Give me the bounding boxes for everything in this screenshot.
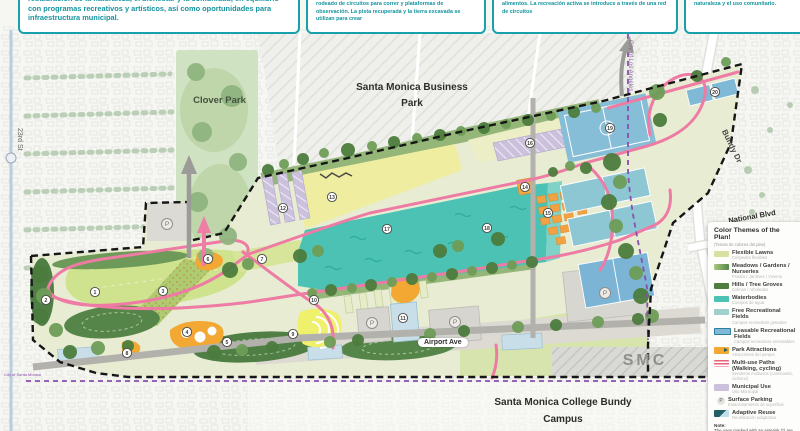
freefield-swatch-icon	[714, 309, 729, 316]
parking-swatch-icon: P	[717, 397, 725, 405]
map-marker-number: 14	[522, 185, 528, 191]
tree-icon	[433, 244, 447, 258]
tree-icon	[352, 334, 364, 346]
tree-icon	[603, 153, 621, 171]
legend-item: Flexible LawnsCéspedes flexibles	[714, 250, 798, 261]
tree-icon	[365, 279, 377, 291]
map-marker-number: 17	[384, 227, 390, 233]
tree-icon	[721, 57, 731, 67]
tree-icon	[548, 167, 558, 177]
tree-icon	[501, 119, 511, 129]
clover-park-label: Clover Park	[192, 94, 247, 108]
tree-icon	[91, 341, 105, 355]
airport-ave-label: Airport Ave	[418, 338, 468, 347]
legend-item-text: Meadows / Gardens / NurseriesPrados / Ja…	[732, 263, 798, 280]
tree-icon	[486, 262, 498, 274]
map-marker-number: 11	[400, 316, 406, 322]
map-marker-number: 6	[207, 257, 210, 263]
attraction-swatch-icon	[714, 347, 729, 354]
23rd-st-label: 23rd St	[16, 128, 23, 151]
tree-icon	[242, 258, 254, 270]
legend-item: Leasable Recreational FieldsCampos recre…	[714, 328, 798, 345]
map-marker-number: 20	[712, 90, 718, 96]
tree-icon	[406, 273, 418, 285]
path-swatch-icon	[714, 360, 729, 367]
tree-icon	[629, 266, 643, 280]
intro-card-1-text: restauración de la naturaleza, el bienes…	[28, 0, 279, 22]
legend-item-text: Flexible LawnsCéspedes flexibles	[732, 250, 773, 261]
tree-icon	[31, 265, 49, 283]
tree-icon	[526, 256, 538, 268]
map-marker-number: 10	[311, 298, 317, 304]
city-of-sm-label: City of Santa Monica	[4, 372, 41, 377]
intro-card-4: dedicado a la infraestructura de la natu…	[684, 0, 800, 34]
map-marker-number: 18	[484, 226, 490, 232]
legend-item-text: Surface ParkingEstacionamiento de superf…	[728, 397, 784, 408]
tree-icon	[262, 164, 274, 176]
reuse-swatch-icon	[714, 410, 729, 417]
parking-letter: P	[453, 319, 457, 326]
map-marker-number: 7	[261, 257, 264, 263]
legend-item-text: Multi-use Paths (Walking, cycling)Sender…	[732, 360, 798, 381]
legend-subtitle: (Temas de colores del plan)	[714, 242, 798, 247]
legend-item: Meadows / Gardens / NurseriesPrados / Ja…	[714, 263, 798, 280]
legend-item: Hills / Tree GrovesColinas / Arboledas	[714, 282, 798, 293]
map-marker-number: 8	[126, 351, 129, 357]
meadow-swatch-icon	[714, 264, 729, 271]
parking-letter: P	[165, 221, 169, 228]
tree-icon	[222, 262, 238, 278]
municipal-swatch-icon	[714, 384, 729, 391]
college-campus-label: Santa Monica College Bundy Campus	[478, 394, 648, 428]
intro-card-2: Se construye un gran reservorio de agua …	[306, 0, 486, 34]
tree-icon	[192, 122, 212, 142]
tree-icon	[347, 283, 357, 293]
tree-icon	[63, 345, 77, 359]
master-plan-screenshot: PPPP 1234567891011121314151617181920 res…	[0, 0, 800, 431]
legend-item-text: Park AttractionsAtracciones del parque	[732, 347, 777, 358]
legend-item: Multi-use Paths (Walking, cycling)Sender…	[714, 360, 798, 381]
map-marker-number: 15	[545, 211, 551, 217]
tree-icon	[653, 113, 667, 127]
intro-card-4-text: dedicado a la infraestructura de la natu…	[694, 0, 781, 7]
intro-card-3: una granja y jardín comunitarios que con…	[492, 0, 678, 34]
tree-icon	[266, 341, 278, 353]
tree-icon	[319, 148, 329, 158]
legend-item: PSurface ParkingEstacionamiento de super…	[714, 397, 798, 408]
leasefield-swatch-icon	[714, 328, 731, 335]
map-marker-number: 12	[280, 206, 286, 212]
map-marker-number: 13	[329, 195, 335, 201]
hills-swatch-icon	[714, 283, 729, 290]
tree-icon	[325, 284, 337, 296]
lawn-swatch-icon	[714, 251, 729, 258]
tree-icon	[507, 260, 517, 270]
tree-icon	[522, 114, 534, 126]
map-marker-number: 2	[45, 298, 48, 304]
map-marker-number: 5	[226, 340, 229, 346]
tree-icon	[632, 313, 644, 325]
legend-item: WaterbodiesCuerpos de agua	[714, 295, 798, 306]
intro-card-3-text: una granja y jardín comunitarios que con…	[502, 0, 666, 15]
tree-icon	[592, 316, 604, 328]
tree-icon	[649, 84, 665, 100]
water-swatch-icon	[714, 296, 729, 303]
parking-letter: P	[603, 290, 607, 297]
map-marker-number: 4	[186, 330, 189, 336]
intro-card-1: restauración de la naturaleza, el bienes…	[18, 0, 300, 34]
tree-icon	[279, 159, 289, 169]
legend-item-text: Free Recreational FieldsCampos recreativ…	[732, 308, 798, 325]
legend-card: Color Themes of the Plan! (Temas de colo…	[708, 222, 800, 431]
tree-icon	[236, 344, 248, 356]
business-park-label: Santa Monica Business Park	[352, 80, 472, 112]
tree-icon	[49, 323, 63, 337]
tree-icon	[312, 245, 324, 257]
map-marker-number: 1	[94, 290, 97, 296]
legend-item: Free Recreational FieldsCampos recreativ…	[714, 308, 798, 325]
tree-icon	[187, 63, 205, 81]
legend-item: Park AttractionsAtracciones del parque	[714, 347, 798, 358]
parking-letter: P	[370, 320, 374, 327]
tree-icon	[324, 336, 336, 348]
tree-icon	[219, 227, 237, 245]
municipal-hangars	[262, 171, 310, 225]
legend-item-text: Hills / Tree GrovesColinas / Arboledas	[732, 282, 783, 293]
tree-icon	[491, 232, 505, 246]
legend-item: Municipal UseUso Municipal	[714, 384, 798, 395]
map-marker-number: 16	[527, 141, 533, 147]
tree-icon	[591, 103, 601, 113]
tree-icon	[207, 345, 221, 359]
transit-stop-icon	[6, 153, 16, 163]
tree-icon	[565, 161, 575, 171]
tree-icon	[229, 153, 247, 171]
tree-icon	[609, 219, 623, 233]
map-marker-number: 9	[292, 332, 295, 338]
tree-icon	[427, 272, 437, 282]
tree-icon	[297, 153, 309, 165]
tree-icon	[446, 268, 458, 280]
legend-title: Color Themes of the Plan!	[714, 227, 798, 241]
tree-icon	[550, 319, 562, 331]
tree-icon	[341, 143, 355, 157]
tree-icon	[512, 321, 524, 333]
tree-icon	[601, 194, 617, 210]
legend-item: Adaptive ReuseReutilización adaptativa	[714, 410, 798, 421]
tree-icon	[32, 308, 48, 324]
tree-icon	[452, 240, 464, 252]
legend-item-text: Leasable Recreational FieldsCampos recre…	[734, 328, 798, 345]
intro-card-2-text: Se construye un gran reservorio de agua …	[316, 0, 471, 22]
legend-item-text: WaterbodiesCuerpos de agua	[732, 295, 767, 306]
legend-rows: Flexible LawnsCéspedes flexiblesMeadows …	[714, 250, 798, 420]
tree-icon	[387, 277, 397, 287]
legend-item-text: Adaptive ReuseReutilización adaptativa	[732, 410, 776, 421]
legend-item-text: Municipal UseUso Municipal	[732, 384, 771, 395]
map-marker-number: 19	[607, 126, 613, 132]
tree-icon	[613, 175, 627, 189]
tree-icon	[367, 141, 377, 151]
tree-icon	[458, 325, 470, 337]
tree-icon	[467, 266, 477, 276]
tree-icon	[618, 243, 634, 259]
tree-icon	[293, 249, 307, 263]
tree-icon	[580, 162, 592, 174]
city-of-la-label: City of Los Angeles	[627, 40, 633, 91]
map-marker-number: 3	[162, 289, 165, 295]
